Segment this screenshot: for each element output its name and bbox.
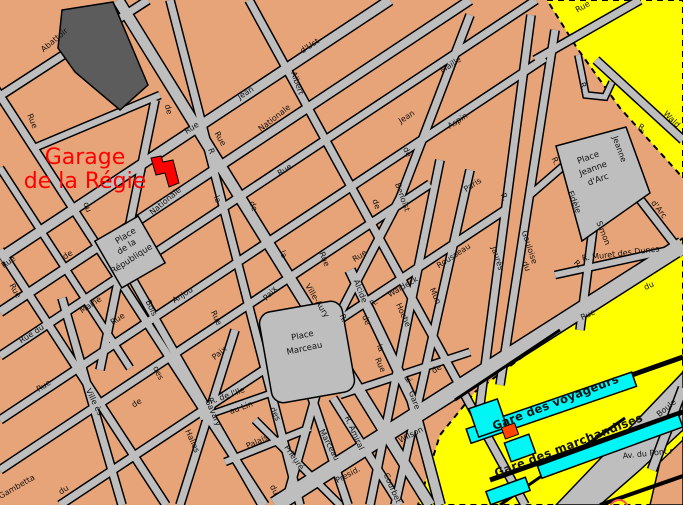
street-label: Rue	[373, 356, 387, 374]
street-segment	[34, 95, 160, 148]
street-label: Jean	[396, 108, 416, 125]
street-label: de	[370, 198, 382, 211]
street-label: Rue	[25, 112, 39, 130]
street-label: du	[81, 201, 93, 214]
street-label: Gambetta	[0, 473, 36, 501]
garage-annotation-line2: de la Régie	[10, 170, 160, 194]
garage-annotation: Garage de la Régie	[10, 146, 160, 194]
street-label: de	[130, 396, 143, 409]
map-canvas: AbattoirRuedeRueRueJeand'UstAlbertNation…	[0, 0, 683, 505]
city-map: AbattoirRuedeRueRueJeand'UstAlbertNation…	[0, 0, 683, 505]
garage-annotation-line1: Garage	[10, 146, 160, 170]
street-label: de	[163, 103, 174, 115]
